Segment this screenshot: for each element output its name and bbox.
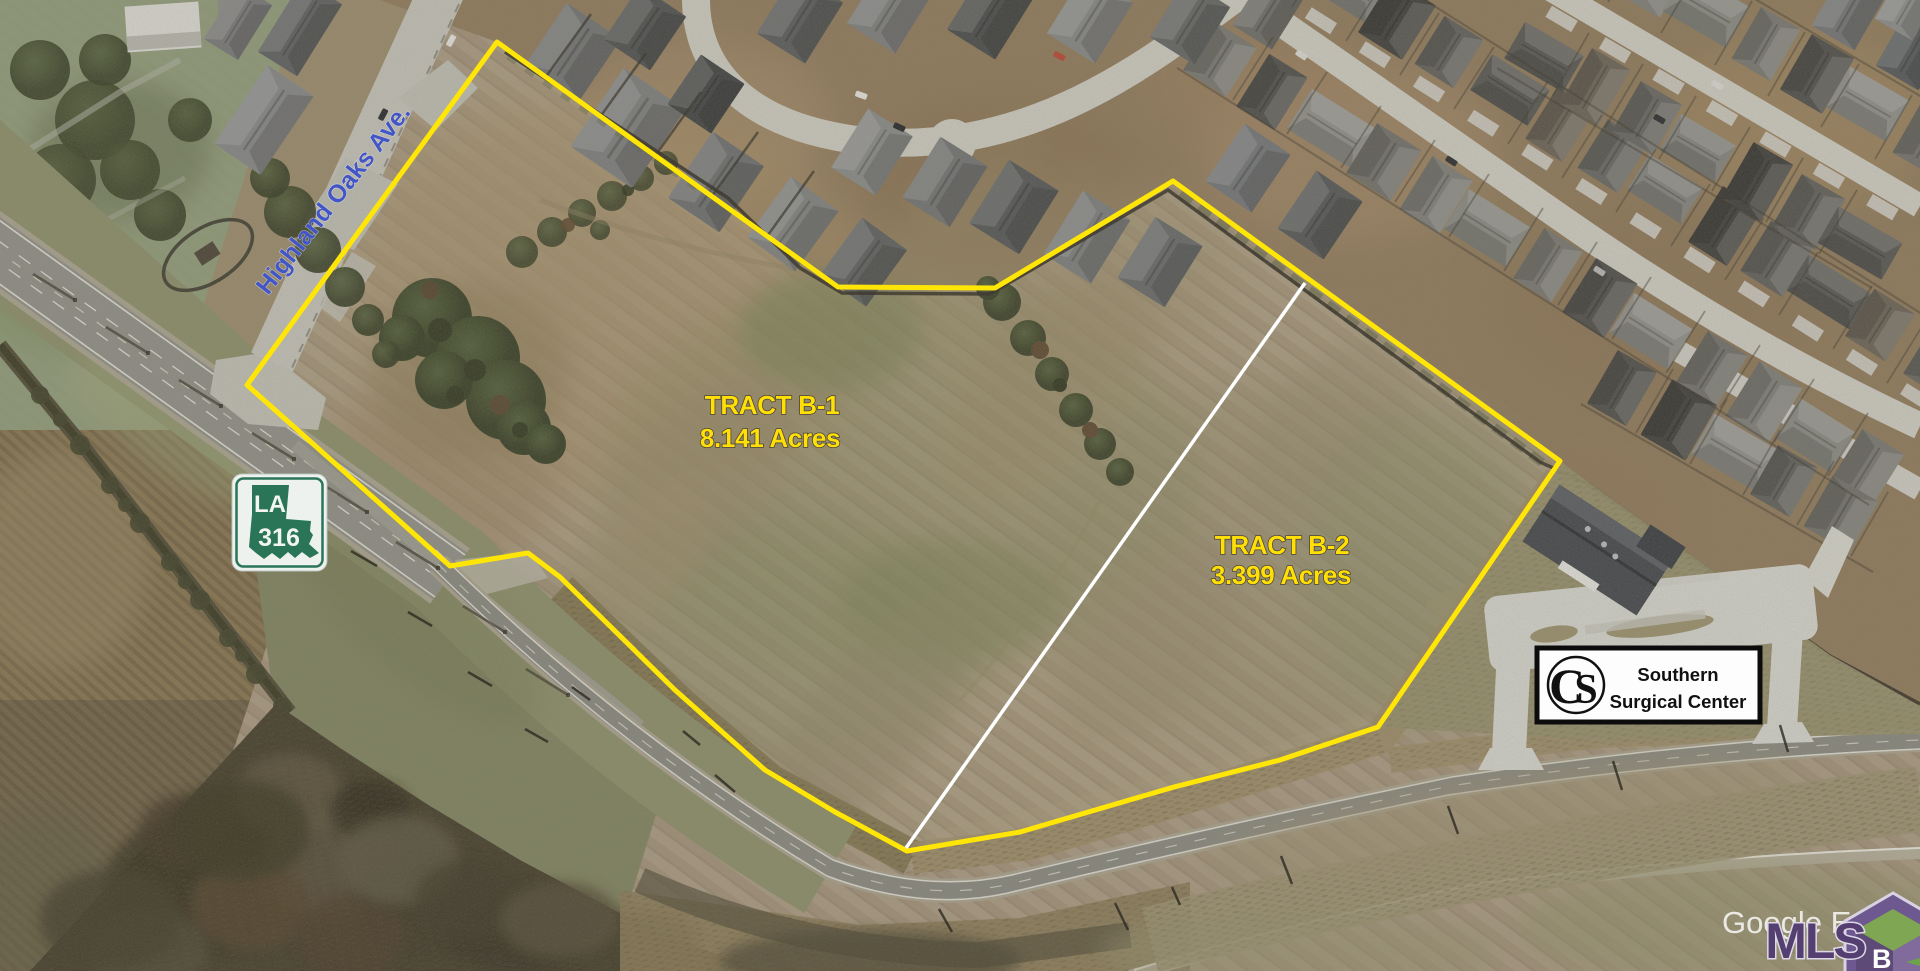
svg-text:Surgical Center: Surgical Center bbox=[1610, 691, 1747, 712]
svg-text:MLS: MLS bbox=[1765, 913, 1865, 969]
svg-text:S: S bbox=[1574, 667, 1597, 713]
svg-text:8.141 Acres: 8.141 Acres bbox=[700, 423, 840, 453]
svg-text:Southern: Southern bbox=[1637, 664, 1718, 685]
svg-text:B: B bbox=[1872, 944, 1892, 971]
svg-text:3.399 Acres: 3.399 Acres bbox=[1211, 560, 1351, 590]
svg-text:TRACT B-2: TRACT B-2 bbox=[1215, 530, 1350, 560]
svg-text:LA: LA bbox=[254, 491, 286, 518]
svg-text:TRACT B-1: TRACT B-1 bbox=[705, 390, 840, 420]
svg-text:316: 316 bbox=[258, 524, 300, 552]
